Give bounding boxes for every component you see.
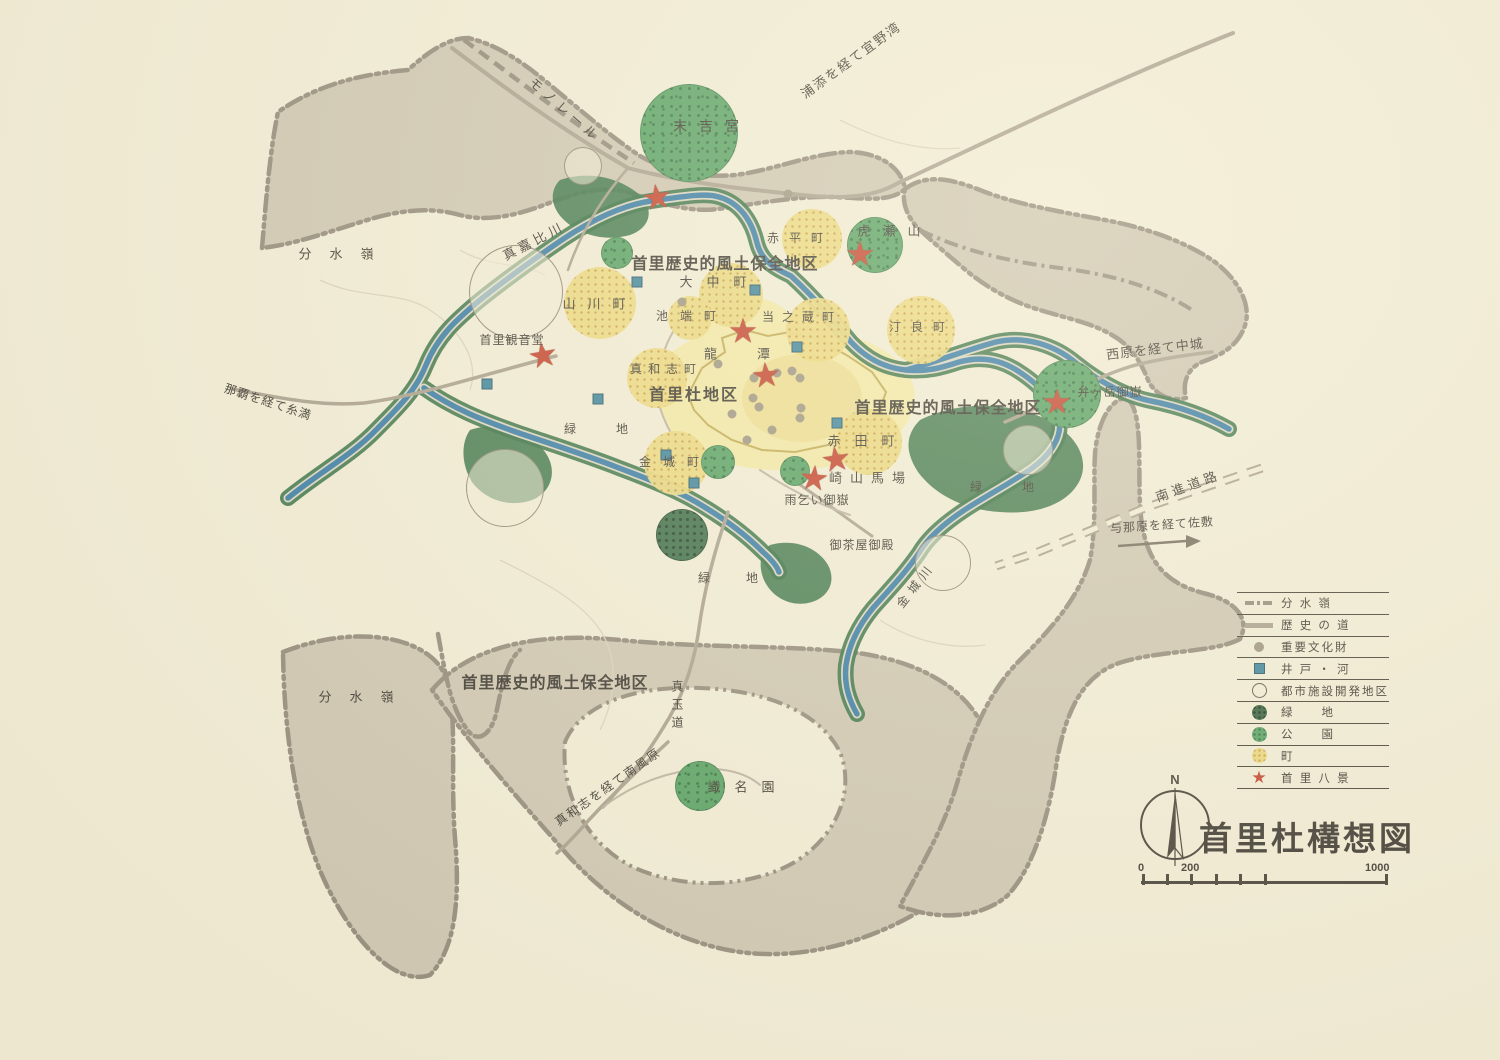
map-label: 西原を経て中城	[1106, 337, 1205, 362]
legend-row-watershed: 分 水 嶺	[1237, 593, 1389, 615]
map-label: 浦添を経て宜野湾	[799, 19, 904, 100]
map-label: 分水嶺	[318, 691, 411, 704]
map-label: 首里歴史的風土保全地区	[854, 401, 1041, 417]
watershed-line-icon	[1245, 601, 1273, 605]
map-label: 真嘉比川	[501, 220, 568, 262]
scale-tick	[1142, 874, 1145, 885]
map-label: 首里歴史的風土保全地区	[631, 257, 818, 273]
legend-row-historic-road: 歴 史 の 道	[1237, 615, 1389, 637]
scale-number: 200	[1181, 862, 1199, 874]
map-label: 汀良町	[889, 321, 955, 333]
legend-row-well-river: 井 戸 ・ 河	[1237, 658, 1389, 680]
map-place-labels: モノレール浦添を経て宜野湾末吉宮分水嶺真嘉比川山川町首里歴史的風土保全地区大中町…	[0, 0, 1500, 1060]
legend-label: 首 里 八 景	[1281, 770, 1351, 786]
legend-label: 井 戸 ・ 河	[1281, 661, 1351, 677]
map-label: 南進道路	[1154, 468, 1222, 503]
green-space-icon	[1252, 705, 1267, 720]
map-label: 首里杜地区	[649, 388, 739, 404]
map-label: 緑地	[564, 423, 668, 435]
historic-road-icon	[1245, 623, 1273, 628]
map-label: 崎山馬場	[829, 472, 913, 485]
legend-label: 緑 地	[1281, 704, 1335, 720]
scale-number: 0	[1138, 862, 1144, 874]
map-label: 赤平町	[767, 232, 833, 244]
map-label: 虎瀬山	[857, 225, 932, 238]
map-label: 首里観音堂	[479, 334, 544, 346]
map-label: 識名園	[707, 781, 788, 794]
well-icon	[1254, 663, 1265, 674]
cultural-property-icon	[1254, 642, 1264, 652]
map-label: 当之蔵町	[762, 311, 842, 323]
legend-row-eight-views: ★ 首 里 八 景	[1237, 767, 1389, 789]
red-star-icon: ★	[1251, 769, 1266, 786]
map-label: 真和志を経て南風原	[553, 746, 663, 828]
map-canvas: ★★★★★★★★ モノレール浦添を経て宜野湾末吉宮分水嶺真嘉比川山川町首里歴史的…	[0, 0, 1500, 1060]
legend-label: 公 園	[1281, 726, 1335, 742]
legend-row-cultural-property: 重要文化財	[1237, 637, 1389, 659]
compass-north-label: N	[1170, 772, 1179, 787]
scale-tick	[1190, 874, 1193, 885]
map-label: 那覇を経て糸満	[223, 382, 313, 422]
map-label: 末吉宮	[673, 119, 751, 133]
map-label: 御茶屋御殿	[829, 539, 894, 551]
map-label: 金城川	[895, 560, 938, 610]
map-label: 弁ヶ岳御嶽	[1077, 386, 1142, 398]
map-label: 緑地	[698, 572, 794, 584]
map-label: 真和志町	[630, 363, 702, 375]
map-label: 赤田町	[827, 435, 908, 448]
map-label: 雨乞い御嶽	[784, 494, 849, 506]
legend-row-green-space: 緑 地	[1237, 702, 1389, 724]
park-icon	[1252, 727, 1267, 742]
map-label: 龍潭	[704, 348, 810, 361]
scale-tick	[1166, 874, 1169, 885]
legend-row-urban-development: 都市施設開発地区	[1237, 680, 1389, 702]
map-label: 大中町	[679, 276, 760, 289]
legend-label: 重要文化財	[1281, 639, 1349, 655]
map-label: 池端町	[656, 310, 728, 322]
map-label: 真玉道	[671, 680, 683, 734]
map-label: 緑地	[970, 481, 1074, 493]
legend-row-town: 町	[1237, 746, 1389, 768]
scale-number: 1000	[1365, 862, 1389, 874]
legend-label: 都市施設開発地区	[1281, 683, 1389, 699]
legend-label: 町	[1281, 748, 1295, 764]
legend-label: 歴 史 の 道	[1281, 617, 1351, 633]
scale-bar: 02001000	[1141, 860, 1391, 892]
legend-row-park: 公 園	[1237, 724, 1389, 746]
scale-tick	[1264, 874, 1267, 885]
map-label: 首里歴史的風土保全地区	[461, 676, 648, 692]
scale-tick	[1239, 874, 1242, 885]
legend-label: 分 水 嶺	[1281, 595, 1332, 611]
open-circle-icon	[1252, 683, 1267, 698]
map-label: 分水嶺	[298, 248, 391, 261]
map-label: 金城町	[639, 456, 711, 468]
map-label: 与那原を経て佐敷	[1110, 515, 1215, 534]
town-icon	[1252, 748, 1267, 763]
scale-tick	[1215, 874, 1218, 885]
map-label: モノレール	[527, 76, 603, 145]
map-legend: 分 水 嶺 歴 史 の 道 重要文化財 井 戸 ・ 河 都市施設開発地区 緑 地…	[1237, 592, 1389, 789]
scale-tick	[1385, 874, 1388, 885]
map-title: 首里杜構想図	[1199, 812, 1415, 860]
map-label: 山川町	[562, 298, 637, 311]
